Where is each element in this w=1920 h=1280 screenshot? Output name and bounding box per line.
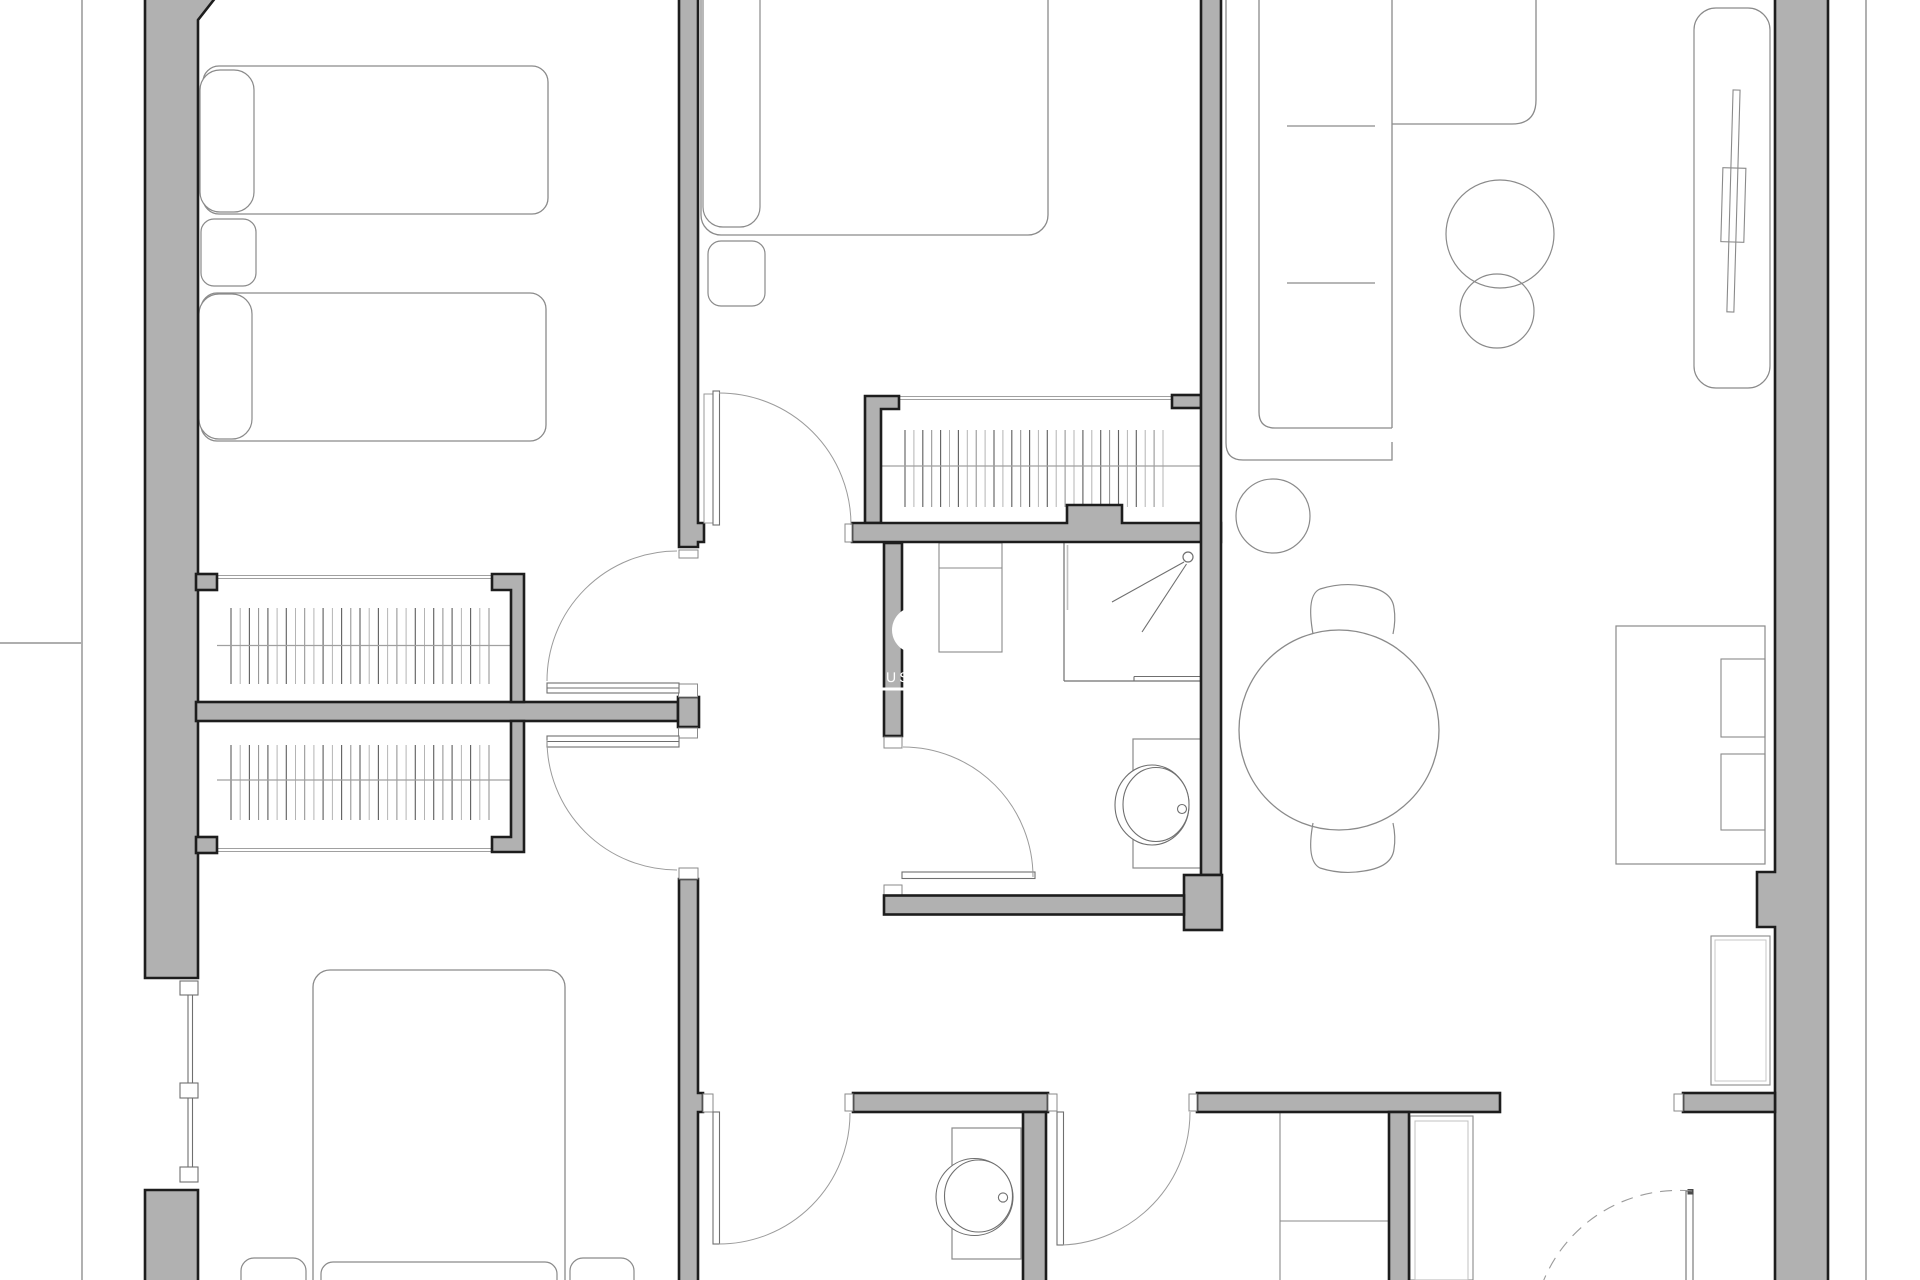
- svg-text:HOUSE: HOUSE: [859, 669, 925, 685]
